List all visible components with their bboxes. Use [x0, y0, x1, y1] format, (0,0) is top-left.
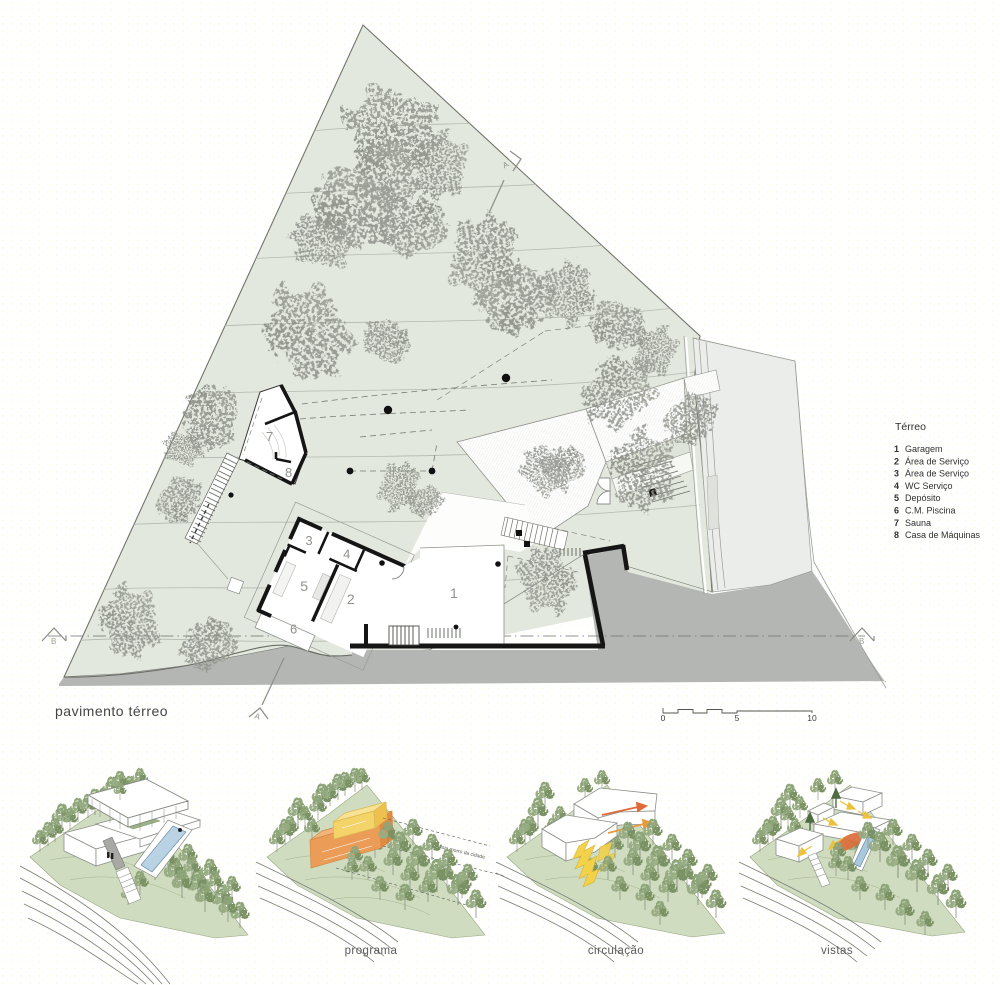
- svg-text:Térreo: Térreo: [895, 421, 926, 433]
- svg-text:vistas: vistas: [821, 945, 853, 957]
- svg-text:Área de Serviço: Área de Serviço: [905, 469, 969, 479]
- svg-text:8: 8: [285, 465, 292, 480]
- svg-text:5: 5: [300, 578, 308, 594]
- svg-text:0: 0: [661, 713, 666, 723]
- svg-text:5: 5: [894, 493, 899, 503]
- svg-text:1: 1: [894, 444, 899, 454]
- svg-text:Sauna: Sauna: [905, 518, 931, 528]
- svg-text:7: 7: [894, 518, 899, 528]
- svg-text:Área de Serviço: Área de Serviço: [905, 456, 969, 466]
- svg-text:Casa de Máquinas: Casa de Máquinas: [905, 530, 981, 540]
- svg-text:circulação: circulação: [588, 945, 644, 957]
- svg-text:5: 5: [735, 713, 740, 723]
- svg-text:programa: programa: [345, 945, 398, 957]
- svg-text:7: 7: [266, 429, 273, 444]
- svg-text:10: 10: [807, 713, 817, 723]
- svg-text:Depósito: Depósito: [905, 493, 941, 503]
- svg-text:B: B: [51, 637, 56, 646]
- svg-text:C.M. Piscina: C.M. Piscina: [905, 506, 956, 516]
- svg-text:Garagem: Garagem: [905, 444, 943, 454]
- svg-text:pavimento térreo: pavimento térreo: [55, 703, 168, 719]
- svg-text:2: 2: [894, 456, 899, 466]
- svg-text:3: 3: [305, 533, 312, 548]
- svg-text:1: 1: [450, 585, 458, 601]
- svg-text:6: 6: [894, 506, 899, 516]
- svg-text:4: 4: [343, 547, 350, 562]
- svg-text:4: 4: [894, 481, 899, 491]
- svg-text:3: 3: [894, 469, 899, 479]
- svg-text:6: 6: [290, 621, 297, 636]
- svg-text:2: 2: [347, 591, 355, 607]
- svg-text:B: B: [859, 637, 864, 646]
- svg-text:WC Serviço: WC Serviço: [905, 481, 953, 491]
- svg-text:8: 8: [894, 530, 899, 540]
